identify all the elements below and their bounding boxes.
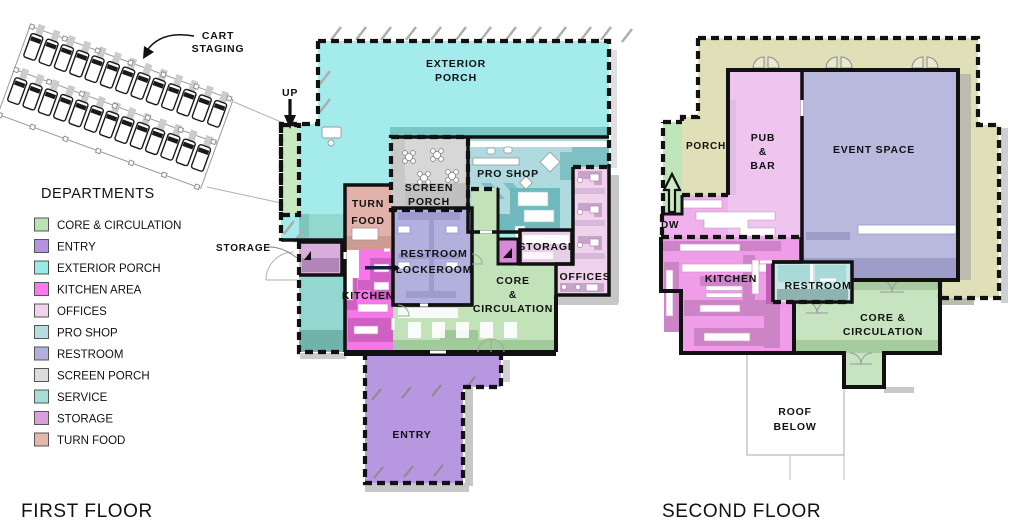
svg-text:EXTERIOR: EXTERIOR	[426, 58, 486, 70]
svg-text:RESTROOM: RESTROOM	[400, 248, 467, 260]
svg-text:PUB: PUB	[751, 132, 776, 144]
svg-text:OFFICES: OFFICES	[57, 306, 107, 318]
svg-text:BELOW: BELOW	[773, 421, 816, 433]
svg-text:DEPARTMENTS: DEPARTMENTS	[41, 186, 155, 202]
svg-text:ENTRY: ENTRY	[57, 242, 96, 254]
svg-text:LOCKEROOM: LOCKEROOM	[396, 264, 473, 276]
svg-text:TURN FOOD: TURN FOOD	[57, 435, 125, 447]
svg-text:CORE & CIRCULATION: CORE & CIRCULATION	[57, 220, 181, 232]
svg-text:UP: UP	[282, 87, 298, 99]
svg-text:STORAGE: STORAGE	[57, 414, 113, 426]
svg-text:CIRCULATION: CIRCULATION	[843, 326, 923, 338]
svg-text:FOOD: FOOD	[351, 215, 385, 227]
svg-text:RESTROOM: RESTROOM	[57, 349, 123, 361]
svg-text:KITCHEN AREA: KITCHEN AREA	[57, 285, 142, 297]
svg-text:EVENT SPACE: EVENT SPACE	[833, 144, 915, 156]
svg-text:&: &	[759, 146, 767, 158]
svg-text:STORAGE: STORAGE	[216, 243, 271, 254]
svg-text:OFFICES: OFFICES	[559, 271, 610, 283]
svg-text:RESTROOM: RESTROOM	[784, 280, 851, 292]
svg-text:KITCHEN: KITCHEN	[705, 273, 757, 285]
svg-text:TURN: TURN	[352, 198, 384, 210]
svg-text:STORAGE: STORAGE	[518, 241, 575, 253]
svg-text:SCREEN: SCREEN	[405, 182, 454, 194]
svg-text:PRO SHOP: PRO SHOP	[57, 328, 118, 340]
svg-text:FIRST FLOOR: FIRST FLOOR	[21, 501, 153, 521]
svg-text:SCREEN PORCH: SCREEN PORCH	[57, 371, 150, 383]
svg-text:PORCH: PORCH	[686, 141, 726, 152]
svg-text:CORE: CORE	[496, 275, 530, 287]
svg-text:CORE &: CORE &	[860, 312, 906, 324]
svg-text:PORCH: PORCH	[435, 72, 477, 84]
svg-text:SECOND FLOOR: SECOND FLOOR	[662, 501, 821, 521]
svg-text:ENTRY: ENTRY	[392, 429, 431, 441]
svg-text:&: &	[509, 289, 517, 301]
svg-text:SERVICE: SERVICE	[57, 392, 108, 404]
svg-text:PORCH: PORCH	[408, 196, 450, 208]
svg-text:EXTERIOR PORCH: EXTERIOR PORCH	[57, 263, 161, 275]
svg-text:ROOF: ROOF	[778, 406, 812, 418]
svg-text:KITCHEN: KITCHEN	[342, 290, 394, 302]
svg-text:PRO SHOP: PRO SHOP	[477, 168, 539, 180]
svg-text:CIRCULATION: CIRCULATION	[473, 303, 553, 315]
svg-text:STAGING: STAGING	[192, 43, 245, 55]
svg-text:BAR: BAR	[750, 160, 775, 172]
svg-text:CART: CART	[202, 30, 234, 42]
